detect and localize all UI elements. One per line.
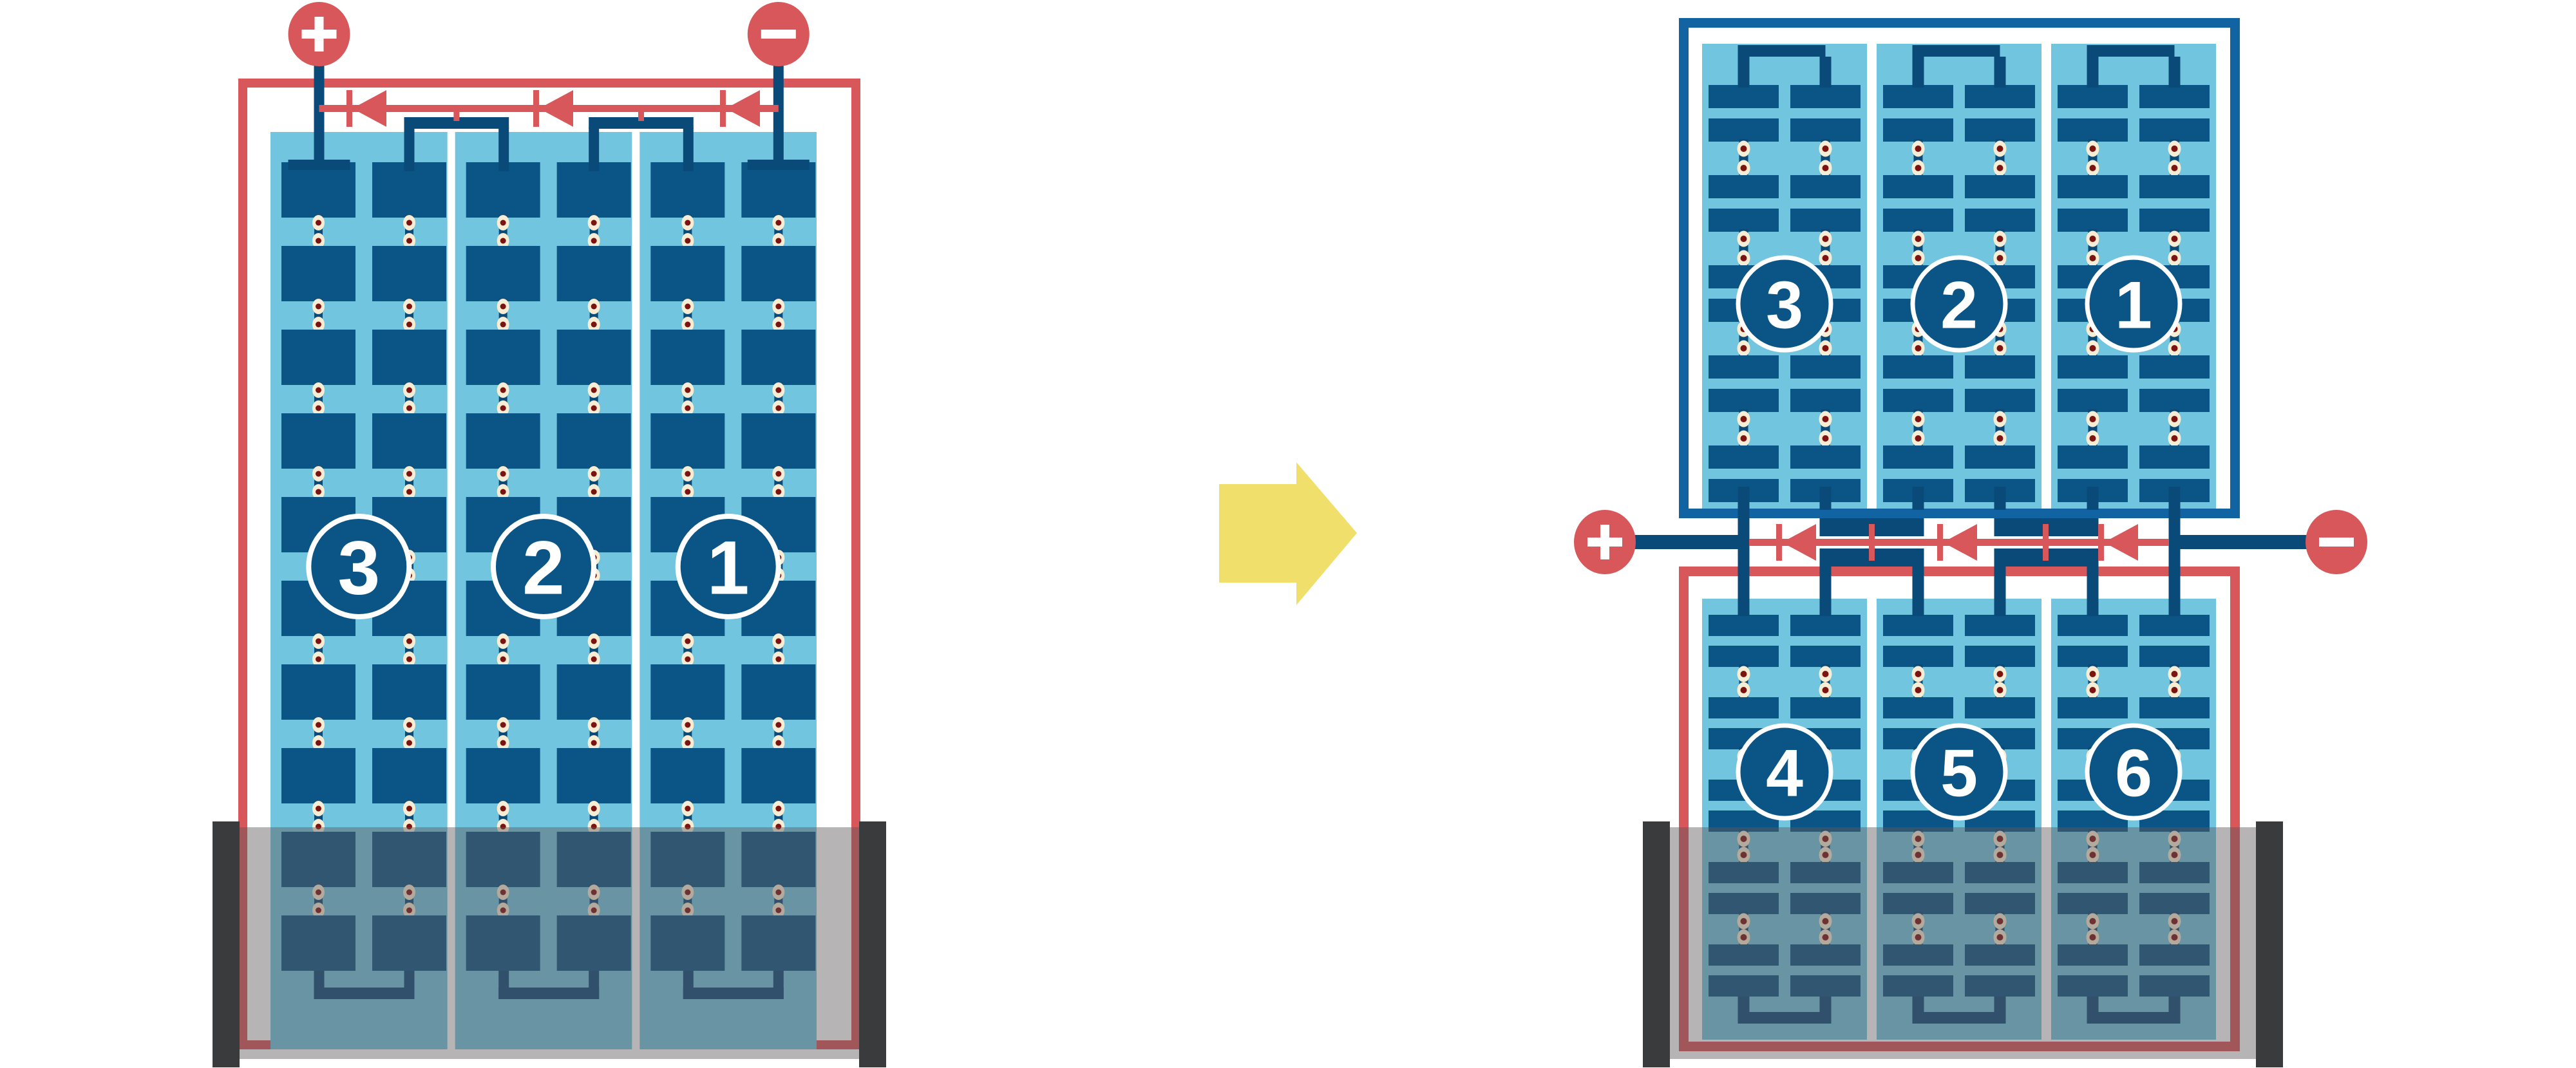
solar-cell	[1709, 118, 1779, 142]
solar-cell	[1883, 355, 1953, 379]
solar-cell	[2139, 85, 2210, 108]
diode-triangle	[352, 90, 386, 127]
solar-cell	[2139, 118, 2210, 142]
cell-interconnect	[1994, 567, 2006, 616]
string-number-badge: 6	[2087, 726, 2180, 818]
cell-interconnect	[404, 127, 415, 171]
diode-tap-wire	[453, 112, 459, 121]
solar-cell	[281, 330, 355, 385]
solder-dot-icon	[406, 220, 412, 226]
negative-terminal-icon	[748, 2, 810, 66]
solar-cell	[1790, 355, 1861, 379]
solder-dot-icon	[1823, 345, 1829, 351]
solar-cell	[557, 246, 631, 301]
solder-dot-icon	[591, 388, 597, 393]
solder-dot-icon	[2172, 345, 2178, 351]
solder-dot-icon	[591, 406, 597, 411]
solder-dot-icon	[2090, 671, 2096, 677]
svg-text:1: 1	[707, 525, 750, 610]
solder-dot-icon	[316, 388, 321, 393]
diode-triangle	[2104, 524, 2138, 561]
cell-interconnect	[1913, 567, 1924, 616]
solar-cell	[466, 246, 540, 301]
solder-dot-icon	[685, 322, 690, 328]
solder-dot-icon	[775, 406, 781, 411]
cell-interconnect	[1738, 45, 1826, 57]
solder-dot-icon	[1823, 671, 1829, 677]
cell-interconnect	[683, 127, 694, 171]
solder-dot-icon	[591, 657, 597, 662]
cell-interconnect	[1820, 567, 1832, 616]
solder-dot-icon	[1741, 345, 1747, 351]
solder-dot-icon	[2090, 416, 2096, 422]
solar-cell	[2058, 615, 2128, 636]
solder-dot-icon	[2090, 435, 2096, 442]
solder-dot-icon	[500, 322, 506, 328]
solar-cell	[1790, 389, 1861, 412]
solder-dot-icon	[685, 220, 690, 226]
solder-dot-icon	[685, 657, 690, 662]
diode-cathode-bar	[2098, 524, 2104, 561]
solder-dot-icon	[316, 238, 321, 244]
solar-cell	[1965, 209, 2035, 232]
solder-dot-icon	[1997, 165, 2003, 171]
solar-cell	[1883, 615, 1953, 636]
cell-interconnect	[773, 57, 784, 170]
svg-text:3: 3	[1766, 268, 1803, 342]
solar-cell	[1709, 355, 1779, 379]
cell-interconnect	[1738, 567, 1750, 616]
solar-cell	[1965, 355, 2035, 379]
solder-dot-icon	[775, 304, 781, 310]
shading-bar	[859, 821, 886, 1067]
solder-dot-icon	[685, 806, 690, 812]
solder-dot-icon	[2172, 687, 2178, 693]
solder-dot-icon	[1915, 255, 1922, 261]
solder-dot-icon	[500, 220, 506, 226]
solar-cell	[1709, 389, 1779, 412]
solder-dot-icon	[1741, 671, 1747, 677]
solder-dot-icon	[1997, 416, 2003, 422]
solder-dot-icon	[316, 722, 321, 728]
solar-cell	[1965, 697, 2035, 718]
string-number-badge: 5	[1913, 726, 2005, 818]
cell-interconnect	[1913, 57, 1924, 88]
solder-dot-icon	[2090, 345, 2096, 351]
solar-cell	[1790, 646, 1861, 667]
solar-cell	[372, 413, 446, 469]
solder-dot-icon	[406, 740, 412, 746]
cell-interconnect	[2087, 567, 2099, 616]
solder-dot-icon	[500, 657, 506, 662]
shading-bar	[2256, 821, 2283, 1067]
solar-cell	[2058, 355, 2128, 379]
solar-cell	[2139, 355, 2210, 379]
solar-cell	[1790, 85, 1861, 108]
solar-cell	[2139, 209, 2210, 232]
shadow-area	[213, 827, 886, 1059]
solar-cell	[466, 330, 540, 385]
solar-cell	[1883, 445, 1953, 469]
cell-interconnect	[1738, 487, 1750, 510]
solar-cell	[741, 413, 815, 469]
solder-dot-icon	[500, 406, 506, 411]
solar-cell	[2058, 389, 2128, 412]
string-number-badge: 3	[1738, 258, 1831, 350]
solar-cell	[372, 664, 446, 720]
solder-dot-icon	[591, 639, 597, 644]
solar-cell	[1790, 118, 1861, 142]
solar-cell	[466, 664, 540, 720]
solder-dot-icon	[1915, 416, 1922, 422]
solar-cell	[2058, 175, 2128, 198]
solder-dot-icon	[1741, 255, 1747, 261]
cell-interconnect	[2169, 509, 2181, 569]
solder-dot-icon	[406, 322, 412, 328]
solder-dot-icon	[775, 238, 781, 244]
solder-dot-icon	[406, 388, 412, 393]
svg-text:3: 3	[337, 525, 380, 610]
solder-dot-icon	[316, 639, 321, 644]
solder-dot-icon	[1741, 165, 1747, 171]
solar-cell	[466, 413, 540, 469]
solder-dot-icon	[500, 489, 506, 495]
solder-dot-icon	[1741, 145, 1747, 152]
solder-dot-icon	[2172, 671, 2178, 677]
solar-cell	[1883, 389, 1953, 412]
solder-dot-icon	[591, 304, 597, 310]
string-number-badge: 2	[1913, 258, 2005, 350]
diagram-stage: 3 2 1	[0, 0, 2576, 1068]
solar-cell	[557, 664, 631, 720]
solder-dot-icon	[406, 304, 412, 310]
solder-dot-icon	[500, 722, 506, 728]
solder-dot-icon	[1823, 435, 1829, 442]
solder-dot-icon	[685, 722, 690, 728]
solar-cell	[281, 664, 355, 720]
solar-panel-wiring-diagram: 3 2 1	[0, 0, 2576, 1068]
solar-cell	[1965, 615, 2035, 636]
cell-interconnect	[2087, 57, 2099, 88]
cell-interconnect	[314, 57, 325, 170]
solar-cell	[1965, 445, 2035, 469]
svg-text:6: 6	[2115, 736, 2152, 810]
solder-dot-icon	[775, 657, 781, 662]
solder-dot-icon	[500, 238, 506, 244]
solder-dot-icon	[1997, 145, 2003, 152]
solar-cell	[1883, 175, 1953, 198]
shading-bar	[213, 821, 240, 1067]
solar-cell	[741, 246, 815, 301]
solar-cell	[741, 748, 815, 803]
solder-dot-icon	[2090, 236, 2096, 242]
svg-text:5: 5	[1940, 736, 1978, 810]
cell-interconnect	[1820, 487, 1832, 510]
solder-dot-icon	[316, 657, 321, 662]
solder-dot-icon	[775, 220, 781, 226]
string-divider	[2041, 44, 2051, 509]
cell-interconnect	[2169, 567, 2181, 616]
solder-dot-icon	[2172, 255, 2178, 261]
bypass-diode-icon	[346, 90, 386, 127]
solder-dot-icon	[1915, 671, 1922, 677]
solder-dot-icon	[1915, 345, 1922, 351]
solar-cell	[650, 413, 724, 469]
solder-dot-icon	[316, 322, 321, 328]
positive-terminal-icon	[289, 2, 350, 66]
solar-cell	[281, 748, 355, 803]
solar-cell	[741, 664, 815, 720]
solar-cell	[1709, 615, 1779, 636]
solder-dot-icon	[1997, 345, 2003, 351]
solder-dot-icon	[2172, 236, 2178, 242]
shading-bar	[1643, 821, 1670, 1067]
solder-dot-icon	[2090, 255, 2096, 261]
solder-dot-icon	[1997, 671, 2003, 677]
solder-dot-icon	[2172, 416, 2178, 422]
diode-cathode-bar	[533, 90, 539, 127]
string-number-badge: 1	[678, 516, 779, 617]
solder-dot-icon	[685, 639, 690, 644]
solar-cell	[557, 748, 631, 803]
solar-cell	[2139, 389, 2210, 412]
solar-cell	[1883, 209, 1953, 232]
shadow-overlay	[213, 821, 886, 1067]
solder-dot-icon	[1741, 416, 1747, 422]
solar-cell	[372, 330, 446, 385]
solar-cell	[1965, 389, 2035, 412]
solder-dot-icon	[775, 489, 781, 495]
diode-tap-wire	[1869, 524, 1875, 561]
solder-dot-icon	[2090, 145, 2096, 152]
solar-cell	[2058, 445, 2128, 469]
solder-dot-icon	[1741, 687, 1747, 693]
cell-interconnect	[2169, 487, 2181, 510]
cell-interconnect	[1820, 57, 1832, 88]
diode-tap-wire	[2043, 524, 2049, 561]
solder-dot-icon	[685, 406, 690, 411]
solder-dot-icon	[1741, 236, 1747, 242]
solar-cell	[1790, 209, 1861, 232]
solar-cell	[1709, 85, 1779, 108]
diode-triangle	[1943, 524, 1977, 561]
solar-cell	[372, 748, 446, 803]
solar-cell	[2139, 175, 2210, 198]
solar-cell	[1709, 697, 1779, 718]
solder-dot-icon	[316, 740, 321, 746]
solar-cell	[372, 246, 446, 301]
diode-cathode-bar	[346, 90, 352, 127]
solar-cell	[650, 664, 724, 720]
cell-interconnect	[1633, 535, 1738, 549]
cell-interconnect	[2087, 487, 2099, 510]
solar-cell	[466, 748, 540, 803]
solar-cell	[2058, 209, 2128, 232]
solder-dot-icon	[591, 806, 597, 812]
svg-text:1: 1	[2115, 268, 2152, 342]
solar-cell	[557, 413, 631, 469]
solder-dot-icon	[406, 639, 412, 644]
svg-text:2: 2	[522, 525, 565, 610]
svg-text:2: 2	[1940, 268, 1978, 342]
solder-dot-icon	[591, 722, 597, 728]
svg-text:4: 4	[1766, 736, 1803, 810]
solar-cell	[557, 330, 631, 385]
diode-triangle	[539, 90, 573, 127]
cell-interconnect	[2087, 45, 2175, 57]
solder-dot-icon	[775, 806, 781, 812]
string-number-badge: 4	[1738, 726, 1831, 818]
solar-cell	[650, 330, 724, 385]
solder-dot-icon	[1823, 236, 1829, 242]
cell-interconnect	[1913, 45, 2000, 57]
solar-cell	[741, 162, 815, 218]
solder-dot-icon	[591, 489, 597, 495]
solder-dot-icon	[1915, 687, 1922, 693]
solder-dot-icon	[775, 471, 781, 477]
solar-cell	[1965, 646, 2035, 667]
solder-dot-icon	[2172, 435, 2178, 442]
cell-interconnect	[589, 127, 599, 171]
solder-dot-icon	[500, 740, 506, 746]
solar-cell	[1965, 85, 2035, 108]
solar-cell	[1709, 175, 1779, 198]
transform-arrow-icon	[1219, 462, 1357, 605]
right-bypass-diode-line	[1749, 524, 2169, 561]
solder-dot-icon	[1823, 165, 1829, 171]
solder-dot-icon	[1915, 165, 1922, 171]
diode-tap-wire	[638, 112, 644, 121]
cell-interconnect	[1994, 487, 2006, 510]
solder-dot-icon	[591, 238, 597, 244]
solder-dot-icon	[685, 388, 690, 393]
solar-cell	[2058, 697, 2128, 718]
solder-dot-icon	[591, 740, 597, 746]
solder-dot-icon	[2090, 165, 2096, 171]
solder-dot-icon	[2172, 165, 2178, 171]
solar-cell	[1883, 85, 1953, 108]
solar-cell	[1965, 175, 2035, 198]
solder-dot-icon	[500, 639, 506, 644]
bypass-diode-icon	[1776, 524, 1816, 561]
solar-cell	[1883, 697, 1953, 718]
solder-dot-icon	[685, 740, 690, 746]
shadow-overlay	[1643, 821, 2283, 1067]
solar-cell	[1790, 615, 1861, 636]
diode-cathode-bar	[1776, 524, 1782, 561]
solder-dot-icon	[1915, 435, 1922, 442]
solder-dot-icon	[316, 220, 321, 226]
solar-cell	[650, 748, 724, 803]
solder-dot-icon	[775, 740, 781, 746]
bypass-diode-icon	[720, 90, 760, 127]
solder-dot-icon	[2172, 145, 2178, 152]
positive-terminal-icon	[1574, 510, 1636, 574]
solar-cell	[2058, 85, 2128, 108]
solder-dot-icon	[1823, 145, 1829, 152]
solar-cell	[2139, 615, 2210, 636]
solar-cell	[1709, 209, 1779, 232]
solder-dot-icon	[406, 657, 412, 662]
solder-dot-icon	[1997, 435, 2003, 442]
diode-triangle	[1782, 524, 1816, 561]
right-diagram: 3 2 1 4 5 6	[1574, 23, 2367, 1068]
cell-interconnect	[2169, 57, 2181, 88]
solder-dot-icon	[316, 304, 321, 310]
diode-triangle	[726, 90, 760, 127]
solder-dot-icon	[1997, 236, 2003, 242]
solder-dot-icon	[591, 220, 597, 226]
cell-interconnect	[498, 127, 509, 171]
solar-cell	[2139, 697, 2210, 718]
string-number-badge: 1	[2087, 258, 2180, 350]
solder-dot-icon	[685, 471, 690, 477]
solar-cell	[1790, 445, 1861, 469]
solar-cell	[2058, 118, 2128, 142]
solar-cell	[281, 246, 355, 301]
solder-dot-icon	[1741, 435, 1747, 442]
solar-cell	[2139, 445, 2210, 469]
solder-dot-icon	[1823, 687, 1829, 693]
cell-interconnect	[1994, 57, 2006, 88]
solar-cell	[1883, 646, 1953, 667]
solder-dot-icon	[316, 406, 321, 411]
cell-interconnect	[1913, 487, 1924, 510]
solder-dot-icon	[2090, 687, 2096, 693]
solar-cell	[1965, 118, 2035, 142]
bypass-diode-icon	[2098, 524, 2138, 561]
solar-cell	[2058, 646, 2128, 667]
solder-dot-icon	[406, 806, 412, 812]
solder-dot-icon	[1915, 145, 1922, 152]
solar-cell	[741, 330, 815, 385]
string-number-badge: 2	[493, 516, 594, 617]
solder-dot-icon	[1915, 236, 1922, 242]
solder-dot-icon	[685, 489, 690, 495]
diode-cathode-bar	[1937, 524, 1943, 561]
solar-cell	[281, 162, 355, 218]
solder-dot-icon	[500, 304, 506, 310]
string-divider	[1867, 44, 1877, 509]
solder-dot-icon	[316, 806, 321, 812]
left-diagram: 3 2 1	[213, 2, 886, 1067]
shadow-area	[1643, 827, 2283, 1059]
solar-cell	[2139, 646, 2210, 667]
solder-dot-icon	[1997, 255, 2003, 261]
solar-cell	[1709, 646, 1779, 667]
string-number-badge: 3	[308, 516, 409, 617]
diode-cathode-bar	[720, 90, 726, 127]
solder-dot-icon	[406, 238, 412, 244]
solder-dot-icon	[1997, 687, 2003, 693]
solder-dot-icon	[685, 238, 690, 244]
solder-dot-icon	[316, 489, 321, 495]
solder-dot-icon	[685, 304, 690, 310]
solder-dot-icon	[406, 722, 412, 728]
solder-dot-icon	[591, 322, 597, 328]
solder-dot-icon	[591, 471, 597, 477]
solar-cell	[1790, 175, 1861, 198]
left-bypass-diode-line	[319, 90, 779, 127]
solder-dot-icon	[500, 388, 506, 393]
cell-interconnect	[1738, 57, 1750, 88]
negative-terminal-icon	[2306, 510, 2367, 574]
solder-dot-icon	[1823, 255, 1829, 261]
solar-cell	[1709, 445, 1779, 469]
solder-dot-icon	[775, 388, 781, 393]
solder-dot-icon	[775, 322, 781, 328]
solder-dot-icon	[1823, 416, 1829, 422]
